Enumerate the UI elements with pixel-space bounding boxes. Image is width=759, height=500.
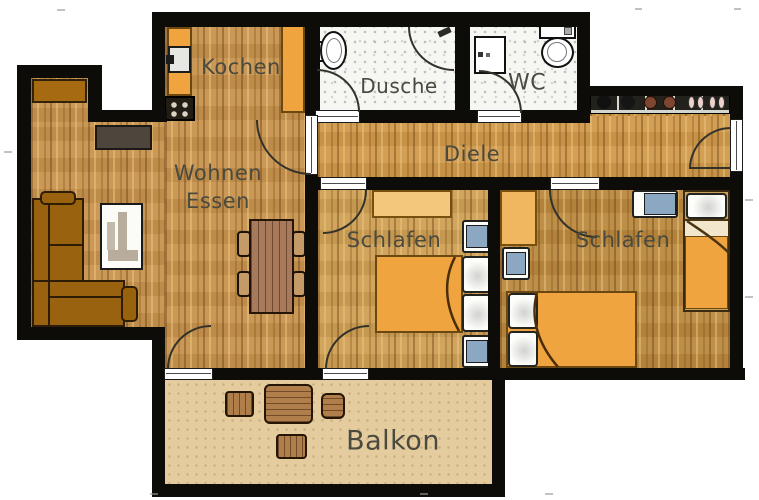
pillow <box>462 256 491 293</box>
shoe-pair-icon <box>709 96 716 109</box>
wall <box>577 12 590 113</box>
room-label-kochen: Kochen <box>201 55 281 79</box>
wall <box>152 12 165 110</box>
wall <box>152 12 590 27</box>
wall <box>152 327 165 497</box>
balcony-chair <box>276 434 307 459</box>
tv-icon <box>118 212 127 254</box>
pillow <box>462 294 491 332</box>
wall <box>17 65 31 340</box>
wall <box>580 86 743 96</box>
door-frame <box>550 177 600 190</box>
floor-plan: Kochen Dusche WC Diele Wohnen Essen Schl… <box>0 0 759 500</box>
kitchen-cabinet <box>281 25 305 113</box>
tv-icon <box>108 250 138 261</box>
room-label-essen: Essen <box>174 187 262 215</box>
tv-icon <box>107 222 115 250</box>
nightstand-item-icon <box>466 225 488 248</box>
wall <box>152 484 505 497</box>
sofa-armrest <box>121 286 138 322</box>
nightstand-item-icon <box>506 252 526 275</box>
pillow <box>508 331 538 367</box>
shoe-item-dark-icon <box>621 95 635 109</box>
double-bed <box>375 255 463 333</box>
room-label-dusche: Dusche <box>360 74 437 98</box>
wall <box>152 368 745 380</box>
bed-blanket <box>685 236 728 309</box>
wall <box>17 327 165 340</box>
sofa-seam <box>50 244 82 246</box>
room-label-schlafen-right: Schlafen <box>576 228 671 252</box>
dining-chair <box>292 231 306 257</box>
nightstand-item-icon <box>466 340 488 363</box>
sofa-armrest <box>40 191 76 205</box>
dining-chair <box>237 231 251 257</box>
room-label-wohnen: Wohnen <box>174 159 262 187</box>
balcony-table <box>264 384 313 424</box>
pillow <box>686 193 727 219</box>
room-label-wc: WC <box>508 71 546 96</box>
wall <box>305 177 730 190</box>
stove-icon <box>164 96 195 121</box>
room-label-schlafen-left: Schlafen <box>347 228 442 252</box>
toilet-seat-icon <box>326 38 342 63</box>
shoe-item-dark-icon <box>597 95 611 109</box>
door-frame <box>320 177 367 190</box>
kitchen-faucet-icon <box>166 55 174 64</box>
shoe-rack-shelf <box>591 110 729 113</box>
sofa-seam <box>48 205 50 325</box>
balcony-door-frame <box>164 368 213 380</box>
room-label-diele: Diele <box>444 142 500 166</box>
entrance-door-frame <box>730 119 743 172</box>
entrance-door-leaf <box>690 167 731 169</box>
sofa-seam <box>50 296 123 298</box>
wc-cistern-button-icon <box>564 27 572 35</box>
sideboard-top <box>32 79 87 103</box>
wardrobe <box>500 190 537 246</box>
balcony-chair <box>321 393 345 419</box>
pillow <box>508 293 538 329</box>
washbasin-tap-icon <box>486 53 490 57</box>
wc-bowl-inner-icon <box>547 42 567 62</box>
nightstand-item-icon <box>644 193 676 215</box>
corner-sofa <box>32 280 125 327</box>
room-label-wohnen-essen: Wohnen Essen <box>174 159 262 215</box>
sideboard-dark <box>95 125 152 150</box>
balcony-chair <box>225 391 254 417</box>
wardrobe <box>372 190 452 218</box>
shoe-item-brown-icon <box>644 96 657 109</box>
wall <box>455 12 470 110</box>
bed-sheet-fold <box>685 219 728 236</box>
shoe-pair-icon <box>697 96 704 109</box>
wall <box>488 177 500 380</box>
shoe-pair-icon <box>718 96 725 109</box>
shoe-pair-icon <box>688 96 695 109</box>
washbasin-tap-icon <box>478 52 483 57</box>
balcony-door-frame <box>322 368 369 380</box>
room-label-balkon: Balkon <box>346 426 440 457</box>
shoe-item-brown-icon <box>663 96 676 109</box>
dining-chair <box>237 271 251 297</box>
wall <box>492 380 505 497</box>
dining-table <box>249 219 294 314</box>
dining-chair <box>292 271 306 297</box>
